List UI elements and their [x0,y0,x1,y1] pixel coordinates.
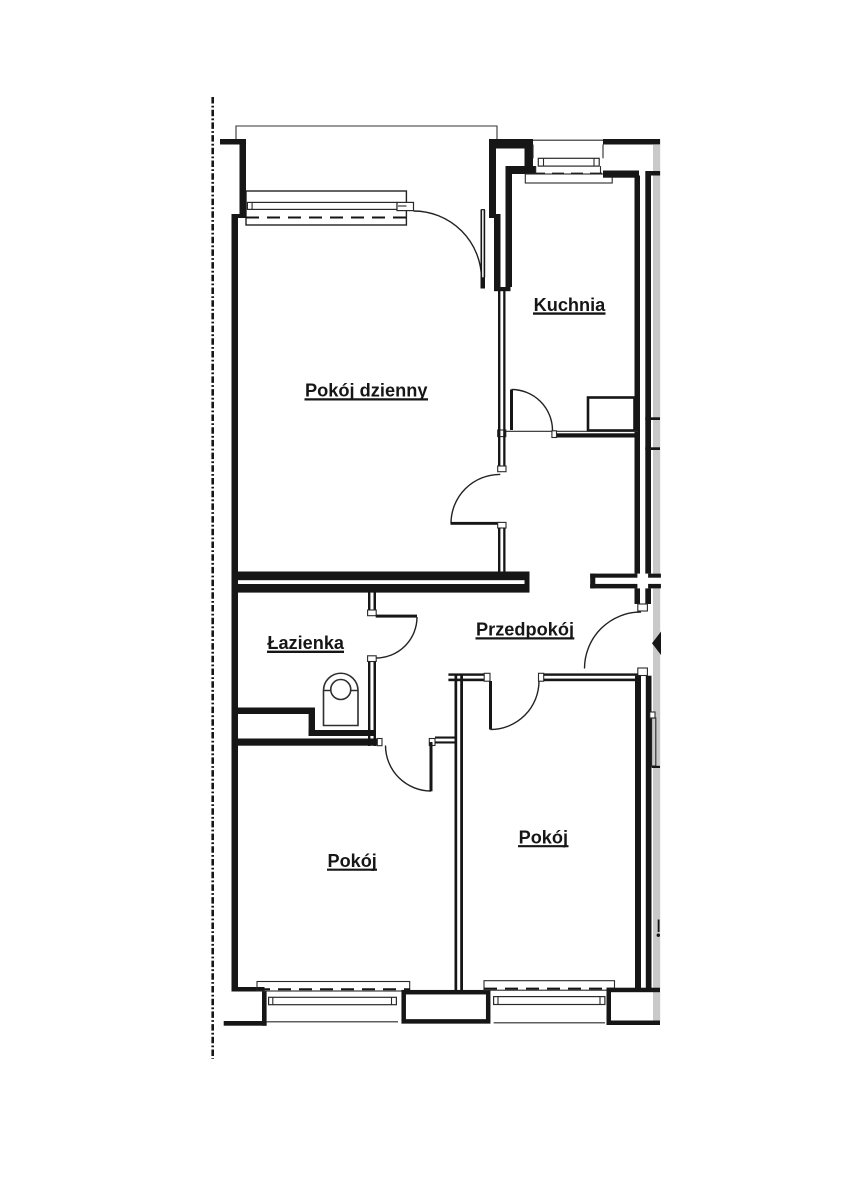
svg-text:Pokój dzienny: Pokój dzienny [305,380,428,401]
svg-text:Pokój: Pokój [328,850,377,871]
svg-text:Przedpokój: Przedpokój [476,618,574,639]
svg-text:Pokój: Pokój [519,827,568,848]
svg-text:Łazienka: Łazienka [267,632,344,653]
svg-text:Kuchnia: Kuchnia [534,294,606,315]
